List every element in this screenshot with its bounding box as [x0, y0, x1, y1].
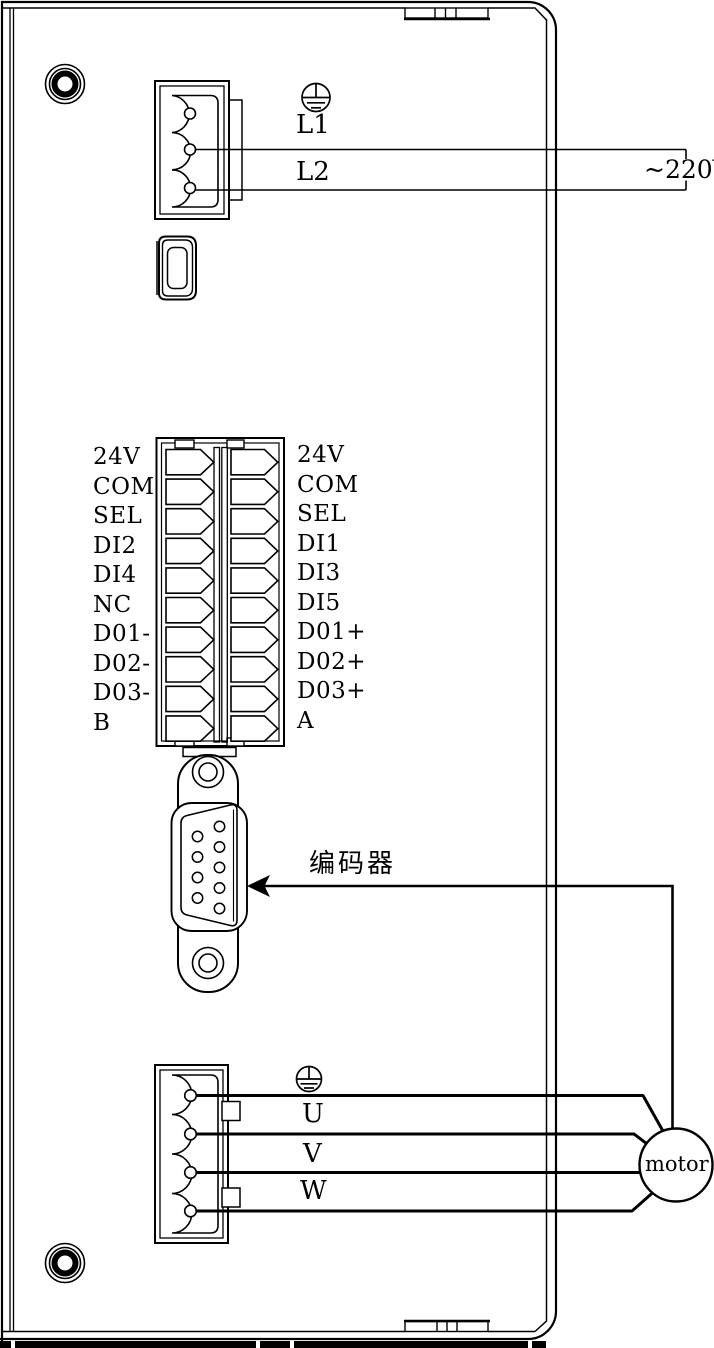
earth-ground-bottom-icon	[297, 1067, 322, 1092]
io-label-left-7: D02-	[93, 652, 150, 676]
wiring-diagram: L1 L2 ~220V 24V COM SEL DI2 DI4 NC D01- …	[0, 0, 714, 1348]
io-label-left-8: D03-	[93, 681, 150, 705]
label-phase-w: W	[300, 1178, 327, 1205]
earth-ground-top-icon	[302, 84, 330, 112]
bottom-rail-bar	[0, 1341, 546, 1348]
mini-usb-port-icon	[157, 237, 196, 300]
motor-wire-u	[197, 1134, 656, 1150]
io-label-left-1: COM	[93, 475, 155, 499]
io-label-right-0: 24V	[297, 443, 344, 467]
io-label-right-9: A	[297, 709, 314, 733]
io-label-right-5: DI5	[297, 591, 341, 615]
motor-wire-w	[197, 1188, 659, 1211]
power-wires	[196, 150, 687, 191]
io-label-right-3: DI1	[297, 532, 341, 556]
label-supply-voltage: ~220V	[644, 157, 714, 183]
io-label-left-9: B	[93, 711, 110, 735]
label-phase-v: V	[303, 1141, 322, 1168]
label-phase-u: U	[302, 1101, 324, 1128]
io-label-left-6: D01-	[93, 622, 150, 646]
label-motor: motor	[645, 1153, 707, 1175]
label-encoder: 编码器	[309, 851, 396, 878]
label-l1: L1	[296, 112, 330, 139]
io-label-right-8: D03+	[297, 679, 366, 703]
io-label-right-7: D02+	[297, 650, 366, 674]
io-label-left-3: DI2	[93, 534, 137, 558]
motor-wires	[197, 1096, 669, 1212]
mounting-screw-top-icon	[46, 65, 85, 104]
io-label-right-6: D01+	[297, 620, 366, 644]
label-l2: L2	[296, 159, 330, 186]
io-label-left-4: DI4	[93, 563, 137, 587]
io-terminal-block	[157, 438, 285, 746]
io-label-right-1: COM	[297, 473, 359, 497]
mounting-screw-bottom-icon	[46, 1244, 85, 1283]
io-label-left-2: SEL	[93, 504, 142, 528]
io-label-right-4: DI3	[297, 561, 341, 585]
motor-connector	[155, 1065, 240, 1243]
bottom-vent-tab	[404, 1321, 490, 1332]
db9-encoder-connector	[172, 748, 248, 993]
io-label-left-0: 24V	[93, 445, 140, 469]
io-label-left-5: NC	[93, 593, 132, 617]
io-label-right-2: SEL	[297, 502, 346, 526]
top-vent-tab	[404, 8, 490, 19]
